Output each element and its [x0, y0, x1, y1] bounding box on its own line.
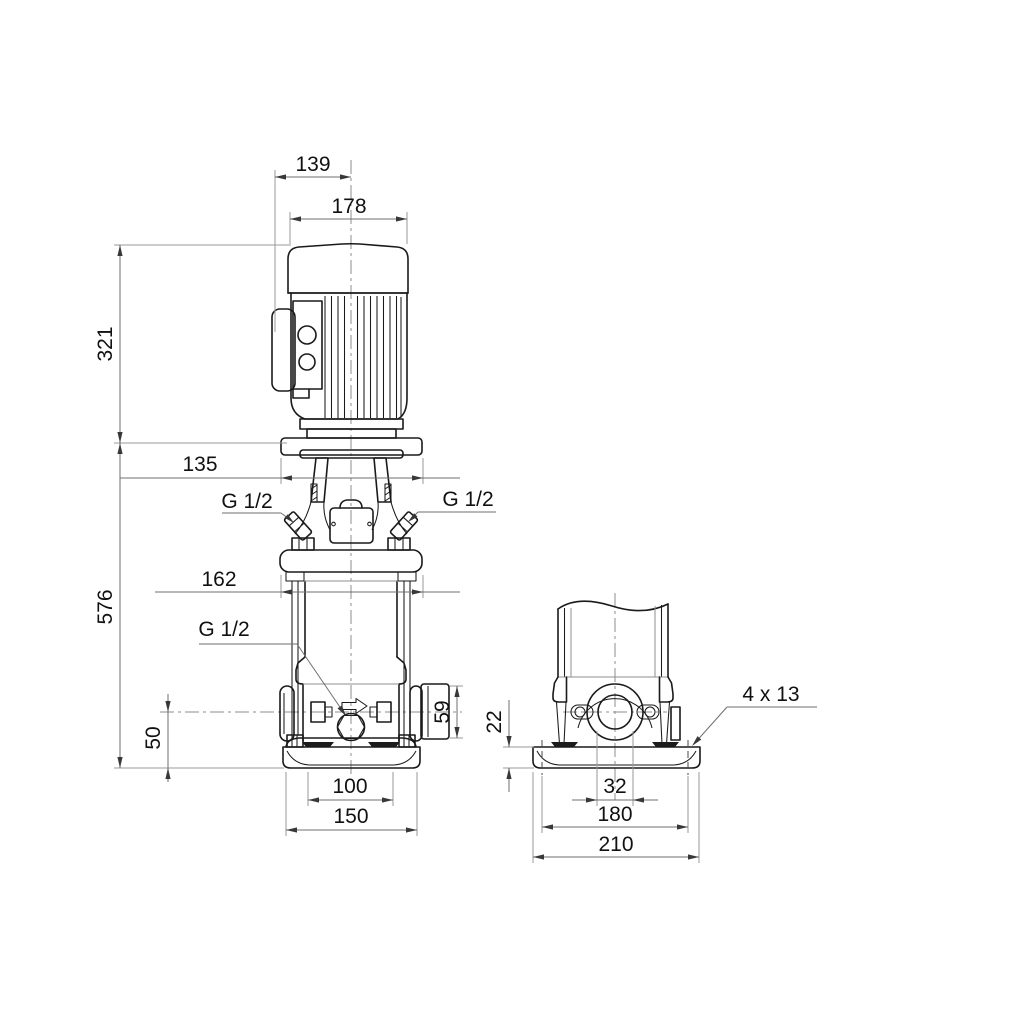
dim-59-label: 59 — [431, 700, 454, 723]
dim-210-label: 210 — [598, 833, 633, 856]
stool-leg-right — [374, 458, 391, 502]
side-left-taper-2 — [564, 702, 566, 744]
dim-port-height-50: 50 — [142, 694, 171, 782]
dim-321-label: 321 — [94, 326, 117, 361]
sleeve-flare-left — [296, 657, 305, 684]
dim-base-plate-22: 22 — [483, 700, 534, 792]
dim-139-label: 139 — [295, 153, 330, 176]
vent-left-label: G 1/2 — [221, 490, 272, 513]
dim-576-label: 576 — [94, 589, 117, 624]
dim-22-label: 22 — [483, 710, 506, 733]
front-view-chamber-stack — [280, 572, 449, 768]
motor-fan-cover — [288, 244, 408, 293]
terminal-box-step — [293, 389, 309, 398]
dim-180-label: 180 — [597, 803, 632, 826]
side-view — [533, 601, 700, 775]
dim-150-label: 150 — [333, 805, 368, 828]
technical-drawing-canvas: 139 178 321 135 576 162 — [0, 0, 1024, 1024]
pump-dimension-drawing-page: 139 178 321 135 576 162 — [0, 0, 1024, 1024]
coupling-screw-left — [332, 522, 336, 526]
dim-100-label: 100 — [332, 775, 367, 798]
dim-135-label: 135 — [182, 453, 217, 476]
side-right-taper-1 — [667, 702, 670, 744]
terminal-box-face — [293, 301, 322, 389]
dim-162-label: 162 — [201, 568, 236, 591]
drain-label: G 1/2 — [198, 618, 249, 641]
dim-32-label: 32 — [603, 775, 626, 798]
vent-plug-right-callout: G 1/2 — [408, 488, 496, 522]
stool-leg-left — [311, 458, 328, 502]
vent-plug-left-callout: G 1/2 — [221, 490, 294, 523]
dim-motor-width-178: 178 — [290, 195, 407, 244]
coupling-screw-right — [368, 522, 372, 526]
head-curve-left-inner — [324, 502, 330, 530]
dim-50-label: 50 — [142, 726, 165, 749]
sleeve-flare-right — [397, 657, 406, 684]
side-bracket-right — [660, 677, 674, 702]
side-port-stub — [671, 707, 680, 740]
side-right-taper-2 — [660, 702, 662, 744]
dim-head-width-135: 135 — [120, 453, 460, 484]
bolt-holes-label: 4 x 13 — [742, 683, 799, 706]
flow-direction-arrow — [342, 699, 367, 714]
front-view-motor — [272, 244, 422, 458]
side-bracket-left — [553, 677, 567, 702]
dim-port-block-59: 59 — [431, 686, 463, 738]
side-left-taper-1 — [557, 702, 560, 744]
bolt-holes-callout-4x13: 4 x 13 — [692, 683, 817, 746]
cable-entry-hole-bottom — [299, 354, 315, 370]
dim-motor-height-321: 321 — [94, 245, 291, 443]
base-plate-side-inner — [537, 751, 696, 765]
break-line — [558, 601, 668, 611]
vent-right-label: G 1/2 — [442, 488, 493, 511]
dim-178-label: 178 — [331, 195, 366, 218]
dim-base-slot-spacing-100: 100 — [308, 772, 393, 806]
terminal-box — [272, 301, 322, 398]
cable-entry-hole-top — [298, 326, 316, 344]
dim-motor-offset-139: 139 — [275, 153, 351, 332]
motor-fins — [325, 296, 401, 418]
